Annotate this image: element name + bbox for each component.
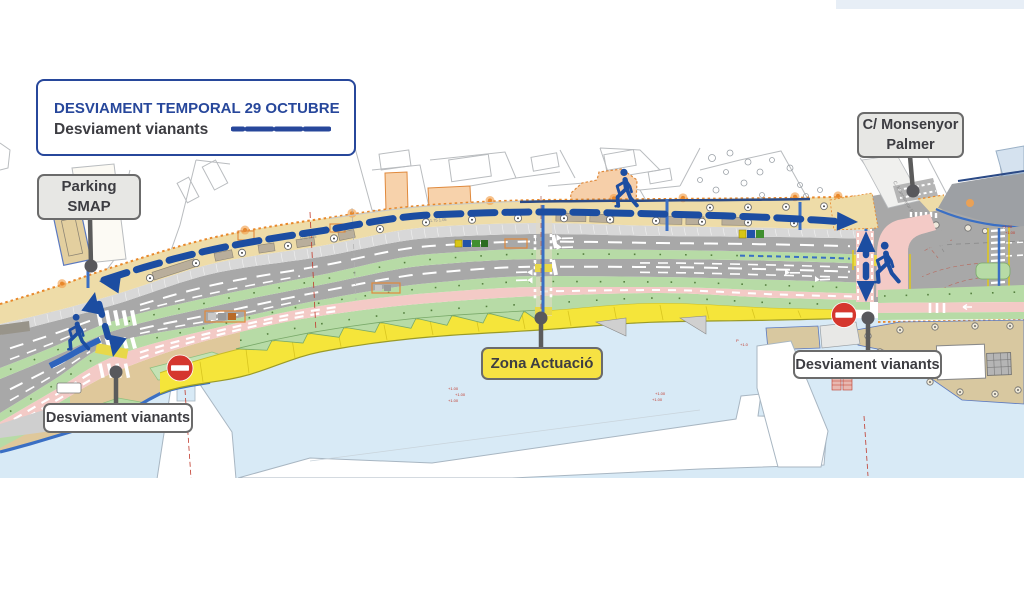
svg-text:+1.00: +1.00 [448,398,459,403]
svg-text:+1.00: +1.00 [455,392,466,397]
svg-text:+1.00: +1.00 [448,386,459,391]
svg-text:+1.00: +1.00 [1005,230,1016,235]
svg-text:+1.00: +1.00 [652,397,663,402]
svg-text:P: P [736,338,739,343]
svg-text:+1.00: +1.00 [1002,224,1013,229]
svg-text:+1.0: +1.0 [740,342,749,347]
svg-text:+1.00: +1.00 [655,391,666,396]
